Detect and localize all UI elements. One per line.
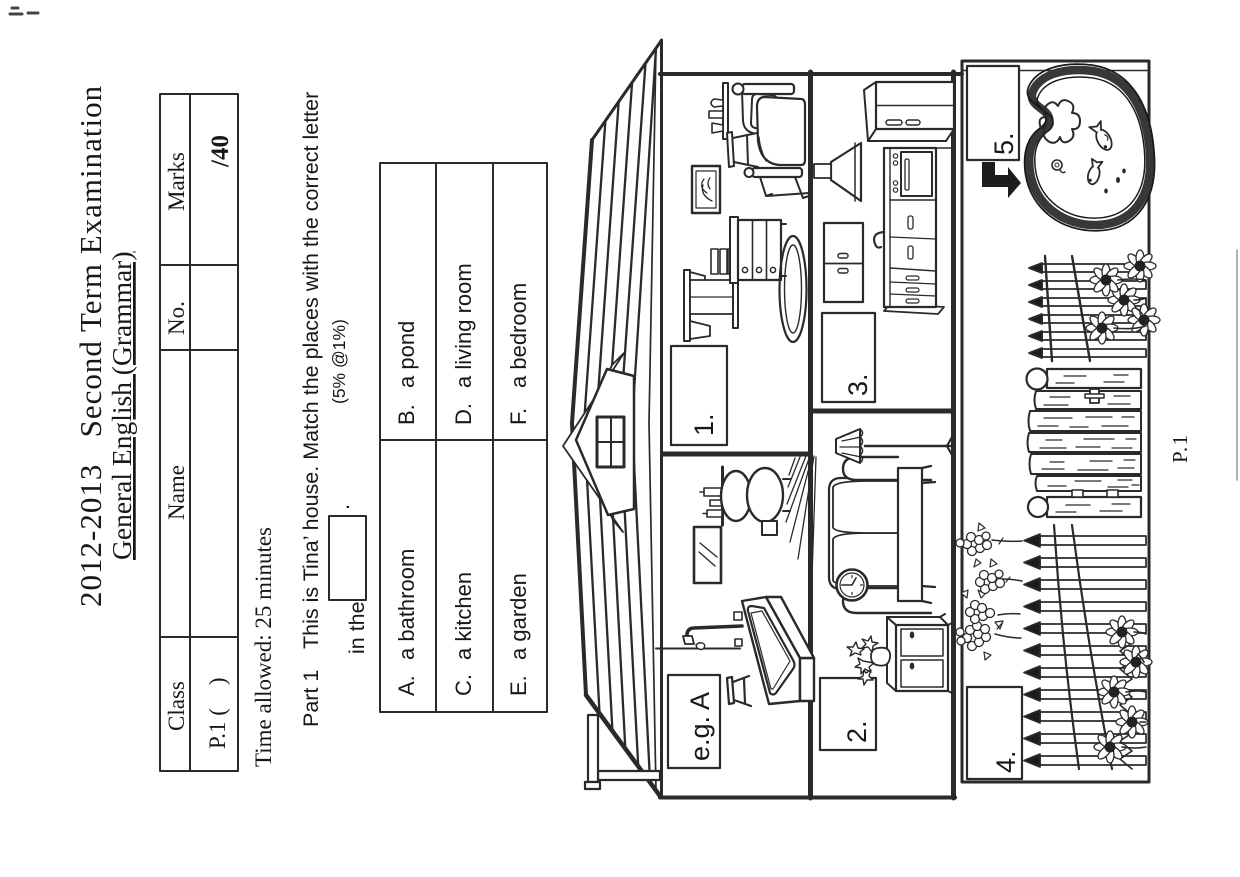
svg-text:a garden: a garden (506, 573, 531, 660)
svg-text:E.: E. (506, 675, 531, 696)
svg-text:This is Tina’ house. Match the: This is Tina’ house. Match the places wi… (299, 92, 323, 649)
svg-text:/40: /40 (207, 135, 234, 168)
svg-text:2.: 2. (842, 720, 872, 743)
svg-text:4.: 4. (991, 750, 1021, 773)
svg-text:a pond: a pond (394, 321, 419, 388)
svg-text:1.: 1. (689, 413, 719, 436)
svg-text:(5% @1%): (5% @1%) (329, 319, 349, 404)
svg-text:a bedroom: a bedroom (506, 283, 531, 388)
svg-text:General English (Grammar): General English (Grammar) (106, 252, 137, 561)
svg-text:a living room: a living room (451, 263, 476, 388)
svg-text:Part 1: Part 1 (299, 670, 323, 727)
svg-text:.: . (329, 504, 354, 510)
svg-text:No.: No. (164, 301, 189, 335)
svg-text:5.: 5. (989, 132, 1019, 155)
svg-text:in the: in the (345, 601, 369, 654)
svg-text:a kitchen: a kitchen (451, 572, 476, 660)
svg-text:3.: 3. (843, 373, 873, 396)
svg-text:a bathroom: a bathroom (394, 549, 419, 660)
svg-text:A.: A. (394, 675, 419, 696)
svg-text:Marks: Marks (164, 152, 189, 211)
svg-text:D.: D. (451, 403, 476, 425)
svg-text:C.: C. (451, 674, 476, 696)
svg-text:Class: Class (164, 681, 189, 731)
svg-text:Time allowed: 25 minutes: Time allowed: 25 minutes (251, 527, 276, 767)
svg-text:B.: B. (394, 404, 419, 425)
svg-text:Name: Name (164, 465, 189, 520)
svg-text:2012-2013 Second Term Examin: 2012-2013 Second Term Examination (73, 85, 108, 607)
svg-text:P.1 ( ): P.1 ( ) (205, 677, 230, 749)
svg-text:e.g. A: e.g. A (685, 692, 715, 761)
svg-text:F.: F. (506, 408, 531, 425)
svg-text:P.1: P.1 (1168, 433, 1192, 463)
